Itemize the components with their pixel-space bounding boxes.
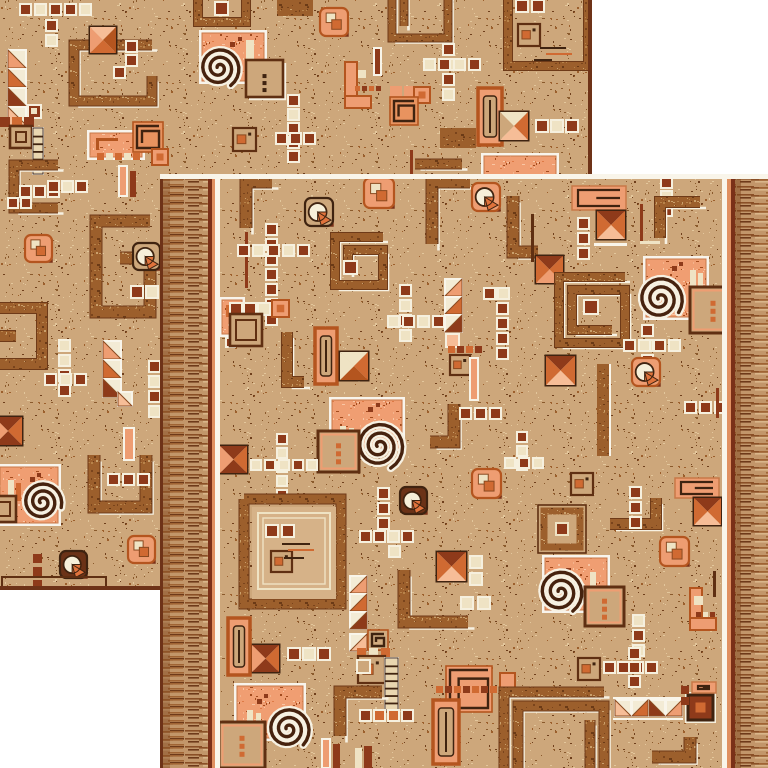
motif-X	[0, 417, 22, 445]
motif-F	[450, 355, 470, 375]
motif-Q	[368, 407, 373, 412]
motif-F	[578, 658, 600, 680]
motif-R	[696, 612, 715, 617]
motif-Q	[584, 300, 598, 314]
motif-T	[666, 700, 682, 716]
motif-F	[10, 126, 32, 148]
motif-O	[60, 551, 87, 578]
motif-Q	[679, 262, 683, 266]
motif-N	[96, 138, 118, 141]
motif-N	[284, 557, 304, 559]
motif-Q	[30, 477, 35, 482]
carpet-right	[160, 174, 768, 768]
motif-N	[594, 243, 627, 246]
motif-T	[649, 700, 665, 716]
motif-T	[445, 315, 462, 332]
motif-Z	[440, 128, 476, 148]
motif-B	[322, 739, 330, 768]
motif-N	[716, 388, 719, 418]
motif-S	[542, 572, 581, 611]
motif-N	[640, 241, 660, 244]
motif-X	[90, 27, 116, 53]
motif-X	[220, 446, 247, 473]
motif-GS	[368, 630, 388, 650]
motif-R	[48, 181, 87, 192]
motif-F	[219, 722, 265, 768]
motif-B	[470, 358, 478, 400]
motif-T	[8, 88, 26, 106]
motif-B	[333, 744, 340, 768]
motif-T	[445, 279, 462, 296]
carpet-product-image	[0, 0, 768, 768]
motif-R	[536, 120, 578, 132]
motif-N	[410, 150, 413, 174]
motif-O	[305, 198, 333, 226]
motif-F	[152, 149, 168, 165]
motif-T	[445, 297, 462, 314]
motif-T	[350, 576, 367, 593]
motif-N	[609, 364, 611, 456]
carpet-right-top-border	[160, 174, 768, 179]
motif-D	[315, 328, 337, 384]
motif-Q	[358, 70, 366, 78]
motif-B	[364, 746, 372, 768]
motif-F	[686, 693, 715, 722]
motif-O	[472, 469, 501, 498]
motif-Q	[230, 42, 235, 47]
motif-B	[374, 48, 381, 75]
motif-Q	[238, 37, 242, 41]
motif-R	[108, 474, 149, 485]
motif-O	[632, 358, 660, 386]
motif-N	[245, 232, 248, 288]
motif-N	[613, 697, 683, 699]
motif-X	[437, 552, 466, 581]
motif-O	[400, 487, 427, 514]
motif-O	[25, 235, 52, 262]
motif-GK	[675, 478, 719, 498]
motif-D	[433, 700, 459, 764]
motif-Q	[357, 660, 370, 673]
motif-O	[320, 8, 348, 36]
motif-B	[500, 673, 515, 688]
motif-GK	[572, 186, 626, 210]
carpet-pattern-canvas	[0, 0, 768, 768]
motif-N	[546, 53, 572, 55]
motif-T	[350, 594, 367, 611]
motif-Q	[37, 473, 41, 477]
motif-R	[97, 153, 140, 160]
motif-X	[597, 211, 625, 239]
motif-X	[340, 352, 368, 380]
motif-F	[233, 128, 256, 151]
motif-T	[350, 612, 367, 629]
motif-N	[713, 571, 716, 597]
motif-D	[228, 618, 250, 675]
motif-X	[500, 112, 528, 140]
motif-T	[632, 700, 648, 716]
motif-C	[629, 648, 640, 687]
motif-Q	[694, 596, 703, 605]
motif-Q	[114, 67, 125, 78]
motif-C	[578, 218, 589, 259]
motif-X	[252, 645, 279, 672]
motif-N	[288, 549, 314, 551]
motif-N	[540, 47, 566, 49]
motif-B	[355, 748, 362, 768]
motif-N	[282, 543, 310, 545]
motif-Z	[597, 364, 609, 456]
motif-O	[128, 536, 155, 563]
motif-F	[571, 473, 593, 495]
motif-Q	[257, 699, 262, 704]
motif-F	[538, 505, 586, 553]
motif-Q	[389, 546, 400, 557]
motif-C	[378, 488, 389, 529]
motif-C	[288, 95, 299, 162]
motif-F	[246, 60, 285, 99]
motif-Z	[277, 0, 313, 16]
motif-B	[130, 171, 136, 197]
motif-F	[318, 431, 359, 472]
motif-GS	[390, 97, 418, 125]
motif-Q	[376, 403, 380, 407]
motif-S	[26, 484, 62, 517]
motif-GS	[133, 122, 163, 152]
motif-T	[103, 341, 121, 359]
motif-B	[345, 96, 371, 108]
motif-F	[230, 314, 262, 346]
motif-B	[690, 270, 696, 288]
motif-L	[385, 658, 398, 710]
motif-S	[203, 50, 239, 85]
motif-T	[118, 392, 132, 406]
motif-R	[276, 133, 315, 144]
motif-N	[534, 59, 552, 61]
motif-R	[460, 408, 501, 419]
motif-O	[364, 178, 394, 208]
motif-B	[119, 166, 127, 196]
motif-N	[531, 214, 534, 262]
motif-T	[8, 50, 26, 68]
motif-T	[103, 360, 121, 378]
motif-N	[252, 507, 336, 599]
motif-R	[288, 648, 330, 660]
motif-Q	[446, 334, 459, 347]
motif-X	[694, 498, 721, 525]
motif-F	[0, 496, 16, 522]
motif-S	[271, 710, 309, 745]
motif-GK	[692, 682, 716, 693]
motif-C	[630, 487, 641, 528]
motif-R	[251, 460, 317, 470]
motif-Q	[264, 694, 268, 698]
motif-B	[690, 618, 716, 630]
motif-Q	[126, 41, 137, 52]
motif-F	[272, 300, 289, 317]
motif-T	[615, 700, 631, 716]
motif-Q	[344, 261, 357, 274]
motif-N	[96, 138, 99, 150]
motif-R	[685, 402, 726, 413]
motif-X	[546, 356, 575, 385]
motif-O	[472, 183, 500, 211]
motif-S	[642, 279, 682, 315]
motif-R	[20, 4, 91, 15]
motif-R	[505, 458, 543, 468]
motif-Q	[31, 108, 37, 114]
motif-P	[415, 164, 468, 170]
motif-R	[436, 686, 497, 693]
motif-F	[518, 24, 540, 46]
motif-R	[45, 374, 86, 385]
motif-D	[478, 88, 502, 145]
motif-N	[640, 204, 643, 244]
motif-T	[8, 69, 26, 87]
motif-N	[613, 718, 683, 720]
motif-Q	[126, 55, 137, 66]
motif-Q	[215, 2, 228, 15]
motif-F	[271, 551, 292, 572]
motif-O	[660, 537, 689, 566]
motif-O	[133, 243, 160, 270]
motif-B	[124, 428, 134, 460]
motif-R	[238, 245, 309, 256]
motif-Q	[672, 266, 677, 271]
motif-F	[585, 587, 624, 626]
